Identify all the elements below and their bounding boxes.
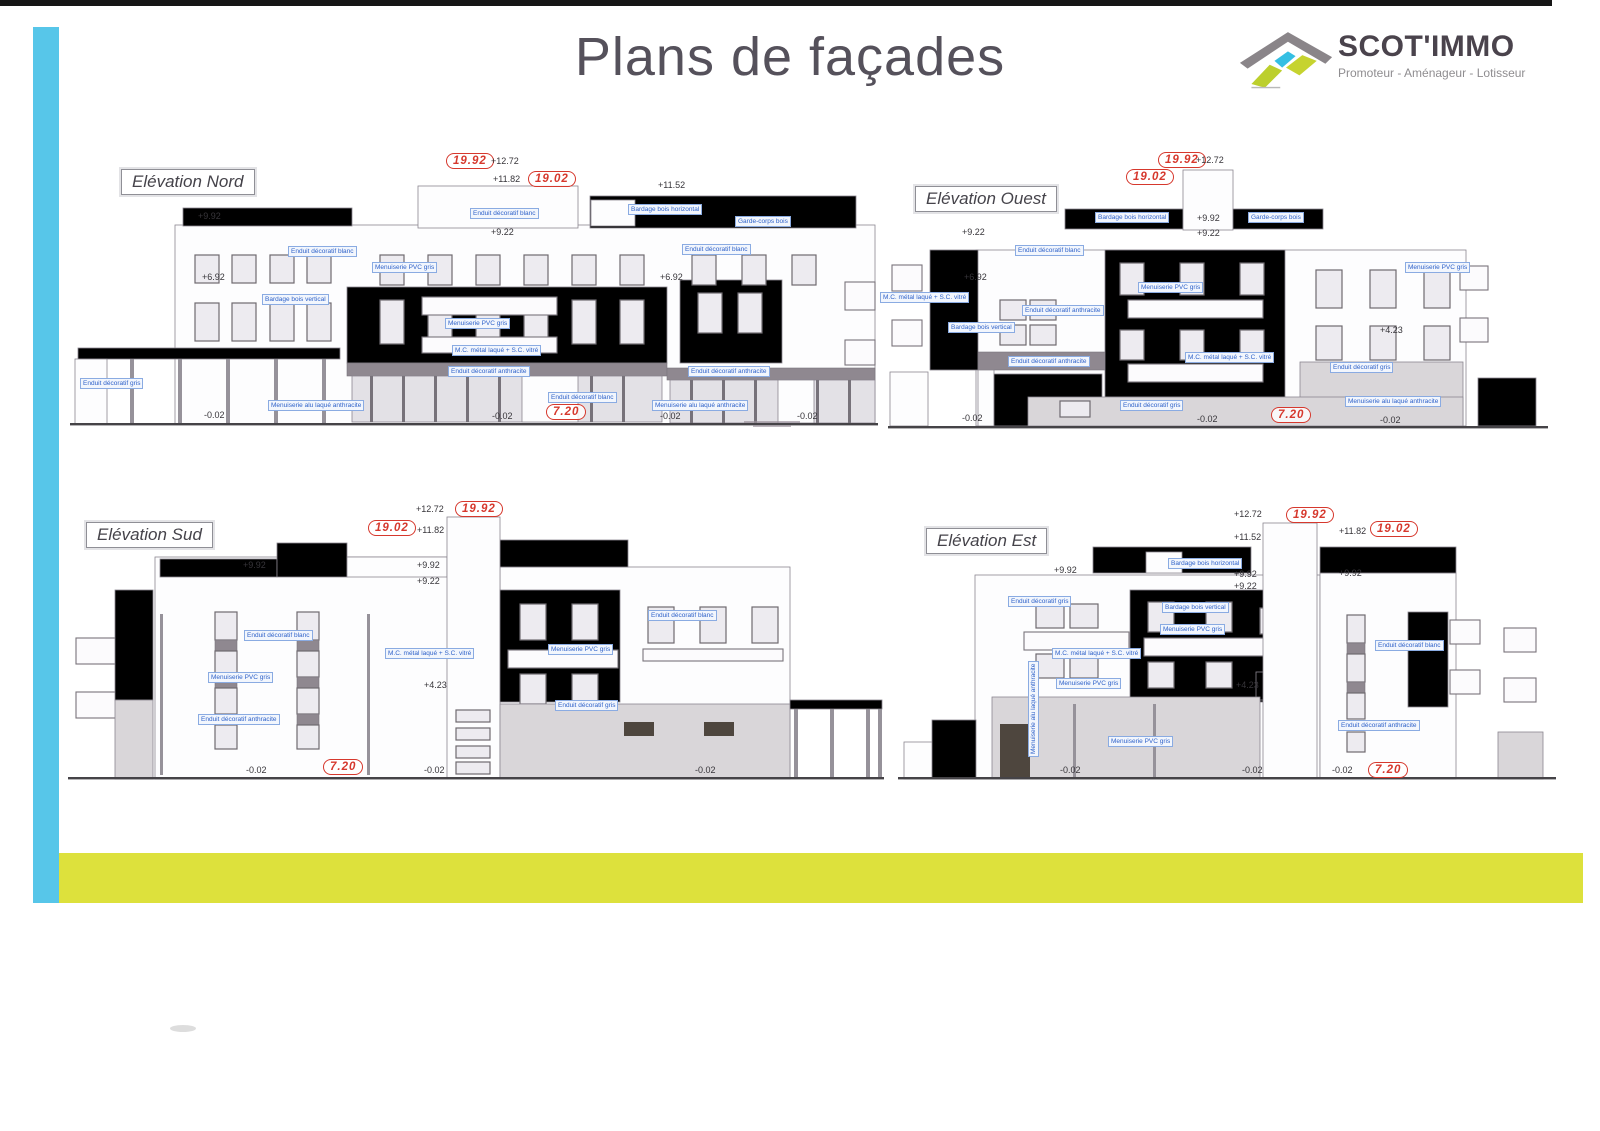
material-label: Garde-corps bois (1248, 212, 1304, 223)
material-label: Enduit décoratif gris (555, 700, 618, 711)
material-label: Menuiserie PVC gris (1056, 678, 1121, 689)
level-badge: 7.20 (1368, 762, 1408, 778)
material-label: Menuiserie alu laqué anthracite (652, 400, 748, 411)
level-badge: 19.02 (368, 520, 416, 536)
material-label: M.C. métal laqué + S.C. vitré (1052, 648, 1141, 659)
material-label: Bardage bois horizontal (628, 204, 702, 215)
material-label: Enduit décoratif blanc (1015, 245, 1084, 256)
dimension-label: -0.02 (962, 413, 983, 423)
dimension-label: -0.02 (246, 765, 267, 775)
material-label: Enduit décoratif blanc (682, 244, 751, 255)
dimension-label: +4.23 (1380, 325, 1403, 335)
material-label: Menuiserie PVC gris (208, 672, 273, 683)
dimension-label: +11.82 (1339, 526, 1366, 536)
material-label: Menuiserie PVC gris (445, 318, 510, 329)
elevation-sud-drawing (68, 492, 886, 784)
level-badge: 19.92 (455, 501, 503, 517)
level-badge: 19.92 (446, 153, 494, 169)
dimension-label: -0.02 (492, 411, 513, 421)
yellow-accent-stripe (59, 853, 1583, 903)
dimension-label: +9.92 (1234, 569, 1257, 579)
dimension-label: -0.02 (1242, 765, 1263, 775)
material-label: Menuiserie PVC gris (548, 644, 613, 655)
material-label: M.C. métal laqué + S.C. vitré (880, 292, 969, 303)
material-label: Bardage bois vertical (262, 294, 329, 305)
dimension-label: +12.72 (1196, 155, 1224, 165)
dimension-label: +4.23 (1236, 680, 1259, 690)
scan-edge-artifact (0, 0, 1552, 6)
dimension-label: +9.92 (1054, 565, 1077, 575)
material-label: Enduit décoratif anthracite (688, 366, 770, 377)
level-badge: 19.02 (1370, 521, 1418, 537)
material-label: Enduit décoratif blanc (548, 392, 617, 403)
dimension-label: -0.02 (1332, 765, 1353, 775)
material-label: Menuiserie PVC gris (1405, 262, 1470, 273)
material-label: Garde-corps bois (735, 216, 791, 227)
material-label: Enduit décoratif anthracite (198, 714, 280, 725)
dimension-label: +9.22 (417, 576, 440, 586)
material-label: Bardage bois vertical (948, 322, 1015, 333)
material-label: Enduit décoratif blanc (470, 208, 539, 219)
level-badge: 19.02 (528, 171, 576, 187)
page-title: Plans de façades (430, 26, 1150, 88)
dimension-label: -0.02 (797, 411, 818, 421)
material-label: Menuiserie alu laqué anthracite (1345, 396, 1441, 407)
material-label: Enduit décoratif gris (1330, 362, 1393, 373)
level-badge: 19.92 (1286, 507, 1334, 523)
material-label: M.C. métal laqué + S.C. vitré (1185, 352, 1274, 363)
dimension-label: +9.22 (962, 227, 985, 237)
dimension-label: +12.72 (1234, 509, 1262, 519)
dimension-label: -0.02 (424, 765, 445, 775)
material-label: Bardage bois vertical (1162, 602, 1229, 613)
logo-name: SCOT'IMMO (1338, 30, 1525, 64)
dimension-label: +11.82 (417, 525, 444, 535)
scan-smudge (170, 1025, 196, 1032)
dimension-label: +9.22 (1197, 228, 1220, 238)
company-logo: SCOT'IMMO Promoteur - Aménageur - Lotiss… (1238, 26, 1568, 96)
level-badge: 7.20 (546, 404, 586, 420)
dimension-label: +6.92 (964, 272, 987, 282)
material-label: Menuiserie PVC gris (1160, 624, 1225, 635)
dimension-label: +11.52 (1234, 532, 1261, 542)
level-badge: 7.20 (1271, 407, 1311, 423)
material-label: Enduit décoratif gris (80, 378, 143, 389)
dimension-label: +9.92 (1197, 213, 1220, 223)
material-label: Menuiserie alu laqué anthracite (268, 400, 364, 411)
dimension-label: -0.02 (1197, 414, 1218, 424)
level-badge: 7.20 (323, 759, 363, 775)
dimension-label: +12.72 (491, 156, 519, 166)
dimension-label: +12.72 (416, 504, 444, 514)
dimension-label: +9.22 (491, 227, 514, 237)
illegible-note (744, 421, 800, 429)
material-label: Enduit décoratif blanc (648, 610, 717, 621)
material-label: Enduit décoratif gris (1120, 400, 1183, 411)
dimension-label: +6.92 (202, 272, 225, 282)
material-label: Menuiserie PVC gris (372, 262, 437, 273)
material-label: Enduit décoratif anthracite (1338, 720, 1420, 731)
material-label: Enduit décoratif blanc (1375, 640, 1444, 651)
material-label: M.C. métal laqué + S.C. vitré (452, 345, 541, 356)
elevation-ouest-drawing (888, 148, 1556, 430)
dimension-label: -0.02 (695, 765, 716, 775)
dimension-label: +9.92 (417, 560, 440, 570)
material-label: Menuiserie PVC gris (1108, 736, 1173, 747)
dimension-label: +4.23 (424, 680, 447, 690)
dimension-label: +9.92 (243, 560, 266, 570)
material-label: Bardage bois horizontal (1168, 558, 1242, 569)
dimension-label: -0.02 (660, 411, 681, 421)
dimension-label: -0.02 (204, 410, 225, 420)
material-label: Enduit décoratif anthracite (1008, 356, 1090, 367)
material-label: Enduit décoratif blanc (288, 246, 357, 257)
dimension-label: +11.82 (493, 174, 520, 184)
material-label: Menuiserie PVC gris (1138, 282, 1203, 293)
material-label: M.C. métal laqué + S.C. vitré (385, 648, 474, 659)
elevation-nord-drawing (70, 148, 880, 430)
dimension-label: -0.02 (1380, 415, 1401, 425)
dimension-label: -0.02 (1060, 765, 1081, 775)
material-label: Enduit décoratif blanc (244, 630, 313, 641)
blue-accent-stripe (33, 27, 59, 903)
level-badge: 19.02 (1126, 169, 1174, 185)
material-label: Enduit décoratif gris (1008, 596, 1071, 607)
scanned-plan-sheet: Plans de façades SCOT'IMMO Promoteur - A… (0, 0, 1600, 1131)
logo-tagline: Promoteur - Aménageur - Lotisseur (1338, 66, 1525, 80)
material-label: Enduit décoratif anthracite (1022, 305, 1104, 316)
dimension-label: +6.92 (660, 272, 683, 282)
material-label: Menuiserie alu laqué anthracite (1028, 661, 1039, 757)
material-label: Bardage bois horizontal (1095, 212, 1169, 223)
roof-logo-icon (1238, 28, 1334, 90)
elevation-est-drawing (898, 492, 1558, 784)
dimension-label: +9.92 (198, 211, 221, 221)
dimension-label: +11.52 (658, 180, 685, 190)
dimension-label: +9.22 (1234, 581, 1257, 591)
dimension-label: +9.92 (1339, 568, 1362, 578)
material-label: Enduit décoratif anthracite (448, 366, 530, 377)
